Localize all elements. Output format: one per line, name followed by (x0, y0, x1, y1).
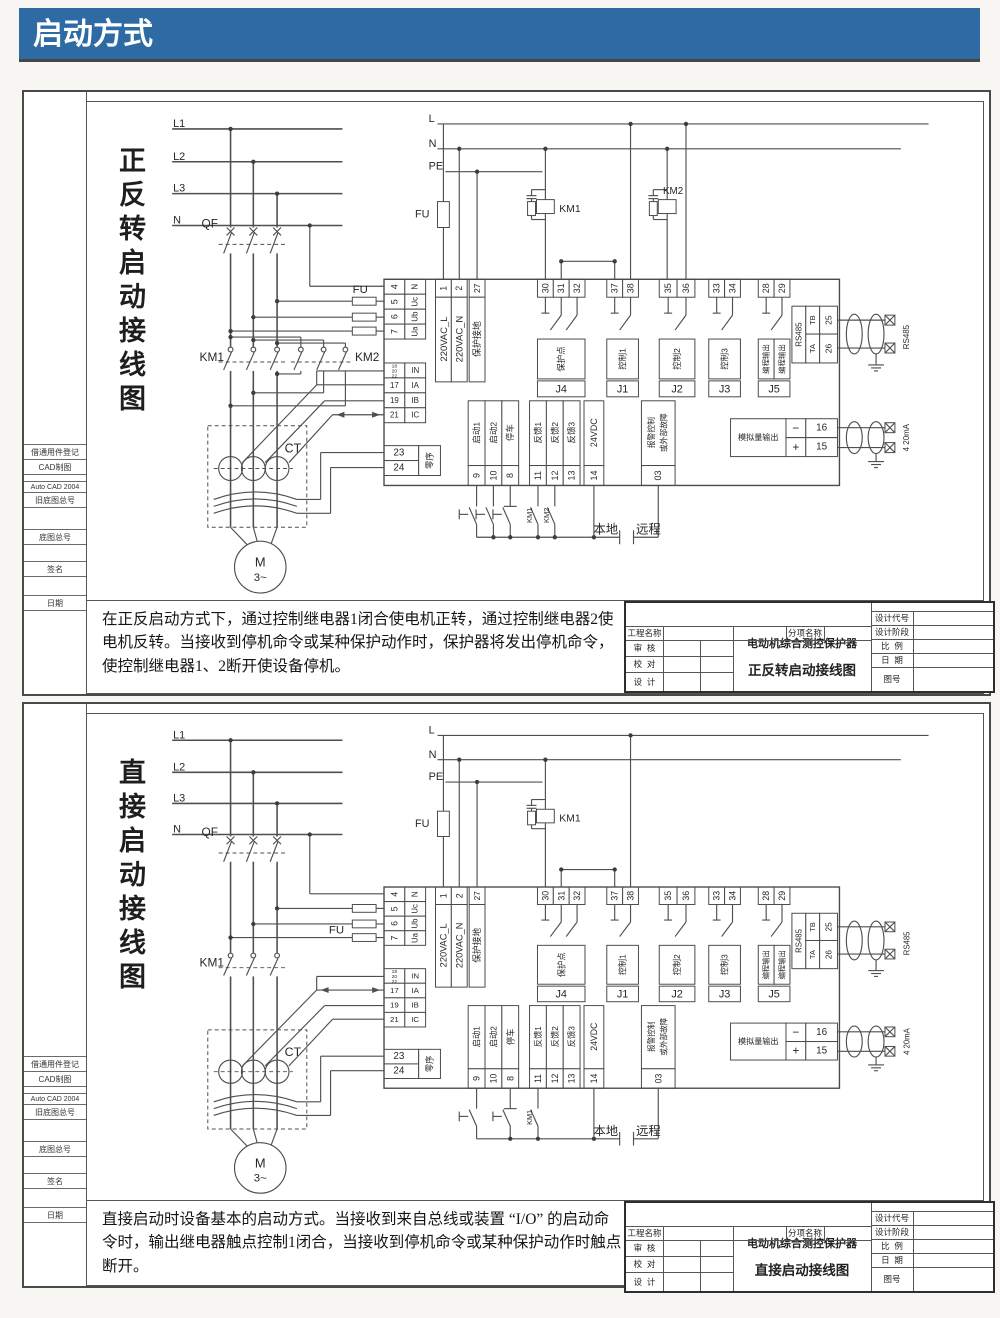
label-t-J4: J4 (555, 988, 566, 1000)
label-t-n17: 17 (390, 381, 399, 390)
label-t-J3: J3 (719, 988, 730, 1000)
label-sh-KM1: KM1 (200, 956, 224, 969)
margin-spacer (24, 507, 86, 529)
label-t-n19: 19 (390, 1001, 399, 1010)
titleblock-divider (663, 1226, 664, 1291)
titleblock-divider (871, 1203, 872, 1291)
label-t-n11: 11 (533, 1074, 543, 1083)
label-t-n36: 36 (681, 283, 691, 293)
label-sh-L1: L1 (173, 729, 185, 741)
tb-review-label: 审 核 (626, 640, 663, 656)
label-t-lUb: Ub (411, 311, 420, 322)
label-t-n1: 1 (438, 286, 448, 291)
drawing-frame: L1L2L3NQFKM1CTM3~LNPEFUKM1本地远程4567NUcUbU… (87, 101, 984, 694)
titleblock-divider (786, 626, 787, 640)
label-t-lIN: IN (411, 366, 419, 375)
margin-label-old-base-no: 旧底图总号 (24, 492, 86, 508)
label-t-n5: 5 (389, 906, 399, 911)
label-t-l11: 反馈1 (533, 1026, 543, 1047)
label-t-n22: 22 (392, 373, 398, 379)
titleblock-divider (913, 1211, 914, 1291)
power-wires (172, 740, 342, 1129)
label-t-J2: J2 (671, 383, 682, 395)
label-sh-L2: L2 (173, 762, 185, 774)
label-t-J1: J1 (617, 383, 628, 395)
titleblock-divider (871, 639, 993, 640)
label-t-n34: 34 (728, 283, 738, 293)
label-t-n32: 32 (572, 891, 582, 901)
label-t-n31: 31 (556, 283, 566, 293)
power-wires (172, 129, 342, 527)
label-sh-N: N (173, 215, 181, 227)
sheet-bottom-row: 直接启动时设备基本的启动方式。当接收到来自总线或装置 “I/O” 的启动命令时，… (87, 1200, 983, 1285)
label-t-n7: 7 (389, 329, 399, 334)
label-sh-local: 本地 (593, 522, 618, 536)
margin-label-parts-reg: 借通用件登记 (24, 1056, 86, 1072)
title-block: 工程名称 分项名称 审 核 校 对 设 计 设计代号 设计阶段 比 例 日 期 … (624, 601, 995, 693)
label-t-n30: 30 (540, 891, 550, 901)
label-t-lN: N (411, 284, 420, 290)
label-t-n7: 7 (389, 936, 399, 941)
label-t-lJ1: 控制1 (618, 348, 628, 370)
label-t-l03b: 或外部故障 (659, 413, 669, 452)
titleblock-divider (871, 611, 993, 612)
label-t-n29: 29 (777, 891, 787, 901)
terminal-cells (352, 809, 895, 1088)
label-t-n16: 16 (816, 1027, 828, 1038)
label-t-J5: J5 (768, 383, 779, 395)
label-t-n1: 1 (438, 893, 448, 898)
label-t-n10: 10 (488, 470, 498, 480)
label-t-n11: 11 (533, 471, 543, 480)
titleblock-divider (824, 1226, 825, 1240)
label-t-n38: 38 (626, 283, 636, 293)
label-t-n16: 16 (816, 423, 827, 434)
titleblock-divider (626, 656, 733, 657)
schematic-svg: L1L2L3NQFKM1CTM3~LNPEFUKM1本地远程4567NUcUbU… (87, 102, 983, 600)
drawing-margin-column: 借通用件登记 CAD制图 Auto CAD 2004 旧底图总号 底图总号 签名… (24, 704, 87, 1286)
sheet-bottom-row: 在正反启动方式下，通过控制继电器1闭合使电机正转，通过控制继电器2使电机反转。当… (87, 600, 983, 693)
titleblock-divider (733, 1226, 734, 1291)
tb-check-label: 校 对 (626, 1256, 663, 1272)
label-sh-local: 本地 (593, 1124, 618, 1138)
label-t-lIB: IB (411, 396, 418, 405)
label-t-lUc: Uc (411, 297, 420, 307)
title-block: 工程名称 分项名称 审 核 校 对 设 计 设计代号 设计阶段 比 例 日 期 … (624, 1201, 995, 1293)
label-t-n31: 31 (556, 891, 566, 901)
label-t-l13: 反馈3 (567, 422, 577, 444)
titleblock-divider (700, 1240, 701, 1291)
label-t-lJ4: 保护点 (556, 952, 566, 977)
tb-date-label: 日 期 (871, 653, 913, 667)
label-t-n33: 33 (712, 283, 722, 293)
sheet-main-area: L1L2L3NQFKM1CTM3~LNPEFUKM1本地远程4567NUcUbU… (87, 704, 989, 1286)
label-t-l13: 反馈3 (567, 1026, 577, 1047)
label-t-l10: 启动2 (488, 1026, 498, 1047)
ct-coil (214, 492, 297, 513)
label-t-l10: 启动2 (488, 422, 498, 444)
tb-code-label: 设计代号 (871, 1211, 913, 1225)
label-t-l12: 反馈2 (550, 1026, 560, 1047)
label-sh-L: L (429, 113, 435, 125)
margin-label-base-no: 底图总号 (24, 1141, 86, 1157)
margin-label-old-base-no: 旧底图总号 (24, 1104, 86, 1120)
label-t-l12: 反馈2 (550, 422, 560, 444)
label-t-n8: 8 (505, 473, 515, 478)
label-t-l14: 24VDC (589, 418, 599, 447)
titleblock-divider (871, 1267, 993, 1268)
label-t-lJ2: 控制2 (672, 348, 682, 370)
titleblock-divider (626, 672, 733, 673)
tb-drawing-name: 正反转启动接线图 (733, 655, 871, 683)
terminal-cells (352, 200, 895, 486)
label-t-J2: J2 (671, 988, 682, 1000)
wiring-diagram-forward-reverse: L1L2L3NQFKM1CTM3~LNPEFUKM1本地远程4567NUcUbU… (87, 102, 983, 600)
label-t-n28: 28 (761, 891, 771, 901)
label-t-n24: 24 (393, 463, 404, 474)
label-t-lJ5: 编程输出 (762, 950, 771, 979)
label-t-n13: 13 (567, 470, 577, 480)
label-sh-N: N (429, 749, 437, 761)
titleblock-divider (626, 1272, 733, 1273)
label-t-n4: 4 (389, 284, 399, 289)
label-t-n5: 5 (389, 299, 399, 304)
titleblock-divider (663, 626, 664, 691)
label-t-lUc: Uc (411, 904, 420, 914)
label-t-n03: 03 (653, 470, 663, 480)
tb-scale-label: 比 例 (871, 639, 913, 653)
label-t-lIC: IC (411, 411, 419, 420)
label-t-n26: 26 (824, 950, 834, 960)
label-t-n27: 27 (472, 283, 482, 293)
label-sh-FU: FU (415, 818, 430, 830)
label-t-n37: 37 (610, 283, 620, 293)
label-t-analog: 模拟量输出 (738, 432, 779, 442)
label-sh-KM1: KM1 (200, 350, 225, 364)
tb-review-label: 审 核 (626, 1240, 663, 1256)
label-t-n4: 4 (389, 892, 399, 897)
label-t-n28: 28 (761, 283, 771, 293)
label-sh-KM2: KM2 (355, 350, 380, 364)
diagram-description: 在正反启动方式下，通过控制继电器1闭合使电机正转，通过控制继电器2使电机反转。当… (87, 601, 624, 693)
label-t-lIB: IB (411, 1001, 418, 1010)
label-t-rs485x: RS485 (902, 324, 911, 349)
margin-spacer (24, 544, 86, 561)
label-sh-M3: 3~ (254, 1173, 267, 1185)
label-t-n15: 15 (816, 1045, 828, 1056)
label-t-lJ3: 控制3 (720, 954, 730, 975)
margin-spacer (24, 1156, 86, 1173)
label-t-lIA: IA (411, 381, 419, 390)
label-sh-QF: QF (202, 216, 218, 230)
label-sh-KM2: KM2 (542, 508, 551, 523)
label-sh-N: N (173, 824, 181, 836)
label-t-ma420: 4 20mA (902, 1027, 911, 1055)
label-t-n38: 38 (625, 891, 635, 901)
label-t-lJ5: 编程输出 (761, 344, 771, 374)
label-sh-CT: CT (285, 1045, 302, 1059)
label-t-l9: 启动1 (472, 1026, 482, 1047)
margin-label-date: 日期 (24, 1207, 86, 1223)
label-sh-L3: L3 (173, 183, 185, 195)
label-sh-CT: CT (285, 442, 302, 456)
tb-date-label: 日 期 (871, 1253, 913, 1267)
tb-figno-label: 图号 (871, 1267, 913, 1291)
titleblock-divider (871, 1211, 993, 1212)
label-sh-KM1: KM1 (559, 814, 581, 825)
label-t-n26: 26 (824, 343, 834, 353)
label-t-n9: 9 (472, 1076, 482, 1081)
margin-spacer (24, 92, 86, 444)
label-t-l14: 24VDC (589, 1022, 599, 1051)
label-t-n15: 15 (816, 442, 827, 453)
label-t-n17: 17 (390, 986, 399, 995)
label-sh-PE: PE (429, 771, 444, 783)
margin-spacer (24, 704, 86, 1056)
label-t-n14: 14 (589, 470, 599, 480)
label-t-l11: 反馈1 (533, 422, 543, 444)
label-t-lpe: 保护接地 (471, 928, 482, 963)
margin-spacer (24, 576, 86, 595)
label-sh-FU: FU (415, 209, 430, 221)
label-t-n29: 29 (777, 283, 787, 293)
label-t-n2: 2 (454, 286, 464, 291)
label-sh-KM2: KM2 (663, 186, 684, 197)
label-t-lUb: Ub (411, 918, 420, 929)
tb-figno-label: 图号 (871, 667, 913, 691)
tb-product-name: 电动机综合测控保护器 (733, 1231, 871, 1255)
sheet-forward-reverse-start: 借通用件登记 CAD制图 Auto CAD 2004 旧底图总号 底图总号 签名… (22, 90, 991, 696)
margin-label-base-no: 底图总号 (24, 529, 86, 545)
label-t-l9: 启动1 (472, 422, 482, 444)
label-sh-remote: 远程 (636, 521, 661, 536)
label-t-n22: 22 (392, 979, 398, 985)
label-t-n03: 03 (653, 1074, 663, 1084)
drawing-margin-column: 借通用件登记 CAD制图 Auto CAD 2004 旧底图总号 底图总号 签名… (24, 92, 87, 694)
label-sh-N: N (429, 138, 437, 150)
label-t-lJ5: 编程输出 (777, 950, 786, 979)
label-t-n35: 35 (663, 891, 673, 901)
label-t-n32: 32 (572, 283, 582, 293)
label-sh-PE: PE (429, 161, 444, 173)
label-sh-L: L (429, 725, 435, 737)
label-t-lJ1: 控制1 (618, 954, 628, 975)
tb-stage-label: 设计阶段 (871, 1225, 913, 1239)
label-t-n9: 9 (472, 473, 482, 478)
ct-coil (214, 1095, 297, 1116)
margin-label-parts-reg: 借通用件登记 (24, 444, 86, 460)
margin-spacer (24, 1086, 86, 1093)
titleblock-divider (871, 1239, 993, 1240)
label-t-n21: 21 (390, 1015, 399, 1024)
tb-code-label: 设计代号 (871, 611, 913, 625)
label-t-n19: 19 (390, 396, 399, 405)
margin-label-signature: 签名 (24, 1173, 86, 1189)
label-t-n35: 35 (663, 283, 673, 293)
label-t-l220L: 220VAC_L (438, 923, 448, 967)
label-t-n23: 23 (393, 448, 404, 459)
label-t-lN: N (411, 891, 420, 897)
titleblock-divider (913, 611, 914, 691)
label-t-tb: TB (808, 922, 817, 931)
tb-project-label: 工程名称 (626, 1226, 663, 1240)
label-t-n21: 21 (390, 411, 399, 420)
label-sh-L1: L1 (173, 118, 185, 130)
tb-design-label: 设 计 (626, 672, 663, 691)
titleblock-divider (824, 626, 825, 640)
label-t-rs485: RS485 (794, 322, 803, 347)
label-t-lJ2: 控制2 (672, 954, 682, 975)
label-t-J5: J5 (768, 988, 779, 1000)
tb-design-label: 设 计 (626, 1272, 663, 1291)
schematic-svg: L1L2L3NQFKM1CTM3~LNPEFUKM1本地远程4567NUcUbU… (87, 714, 983, 1200)
label-t-lJ5: 编程输出 (777, 344, 787, 374)
label-sh-M3: 3~ (254, 572, 267, 584)
label-t-n24: 24 (393, 1066, 405, 1077)
label-t-l8: 停车 (505, 424, 515, 441)
titleblock-divider (700, 640, 701, 691)
label-sh-FU: FU (353, 284, 368, 296)
label-t-n10: 10 (488, 1074, 498, 1084)
label-t-n6: 6 (389, 921, 399, 926)
label-t-n12: 12 (550, 1074, 560, 1084)
tb-check-label: 校 对 (626, 656, 663, 672)
label-t-rs485x: RS485 (902, 931, 911, 955)
label-sh-remote: 远程 (636, 1123, 661, 1138)
label-t-n23: 23 (393, 1051, 405, 1062)
label-t-lIC: IC (411, 1015, 419, 1024)
label-sh-KM1: KM1 (559, 204, 581, 215)
titleblock-divider (871, 1225, 993, 1226)
margin-spacer (24, 1119, 86, 1141)
tb-project-label: 工程名称 (626, 626, 663, 640)
page-title: 启动方式 (33, 18, 153, 51)
label-t-n37: 37 (610, 891, 620, 901)
label-t-l220N: 220VAC_N (454, 316, 465, 363)
wiring-diagram-direct: L1L2L3NQFKM1CTM3~LNPEFUKM1本地远程4567NUcUbU… (87, 714, 983, 1200)
label-sh-M: M (255, 555, 266, 570)
label-t-n8: 8 (505, 1076, 515, 1081)
label-t-n14: 14 (589, 1074, 599, 1084)
label-t-lIA: IA (411, 986, 419, 995)
label-t-n30: 30 (540, 283, 550, 293)
label-t-n2: 2 (454, 893, 464, 898)
margin-label-signature: 签名 (24, 561, 86, 577)
label-t-n6: 6 (389, 314, 399, 319)
label-t-lUa: Ua (411, 326, 420, 337)
label-t-l8: 停车 (505, 1028, 515, 1045)
label-t-n27: 27 (472, 891, 482, 901)
label-t-l03a: 报警控制 (646, 1021, 656, 1052)
label-t-n25: 25 (824, 922, 834, 932)
label-t-tb: TB (808, 315, 817, 325)
label-sh-KM1: KM1 (525, 1110, 534, 1125)
label-t-ta: TA (808, 344, 817, 353)
label-t-l03a: 报警控制 (646, 417, 656, 448)
label-t-plus: + (792, 1044, 799, 1057)
label-t-n36: 36 (681, 891, 691, 901)
diagram-description: 直接启动时设备基本的启动方式。当接收到来自总线或装置 “I/O” 的启动命令时，… (87, 1201, 624, 1285)
label-sh-L3: L3 (173, 793, 185, 805)
label-sh-KM1: KM1 (525, 508, 534, 523)
label-t-analog: 模拟量输出 (738, 1036, 779, 1046)
label-t-ma420: 4 20mA (902, 423, 911, 451)
label-t-ta: TA (808, 950, 817, 959)
label-t-n25: 25 (824, 315, 834, 325)
tb-scale-label: 比 例 (871, 1239, 913, 1253)
sheet-main-area: L1L2L3NQFKM1CTM3~LNPEFUKM1本地远程4567NUcUbU… (87, 92, 989, 694)
label-t-minus: − (792, 421, 799, 435)
titleblock-divider (871, 1253, 993, 1254)
label-t-plus: + (792, 440, 799, 454)
titleblock-divider (786, 1226, 787, 1240)
label-t-lJ3: 控制3 (720, 348, 730, 370)
label-sh-QF: QF (202, 826, 218, 839)
titleblock-divider (626, 1256, 733, 1257)
tb-drawing-name: 直接启动接线图 (733, 1255, 871, 1283)
label-t-lzx: 零序 (425, 452, 435, 469)
margin-spacer (24, 1188, 86, 1207)
label-sh-L2: L2 (173, 151, 185, 163)
label-t-J3: J3 (719, 383, 730, 395)
label-t-l220L: 220VAC_L (438, 317, 449, 362)
diagram-side-title: 正反转启动接线图 (111, 146, 150, 418)
tb-product-name: 电动机综合测控保护器 (733, 631, 871, 655)
drawing-frame: L1L2L3NQFKM1CTM3~LNPEFUKM1本地远程4567NUcUbU… (87, 713, 984, 1286)
label-t-l03b: 或外部故障 (659, 1017, 669, 1055)
label-t-n13: 13 (567, 1074, 577, 1084)
label-sh-M: M (255, 1156, 266, 1171)
titleblock-divider (733, 626, 734, 691)
label-t-l220N: 220VAC_N (454, 923, 464, 968)
label-t-n33: 33 (712, 891, 722, 901)
label-t-J1: J1 (617, 988, 628, 1000)
label-t-lzx: 零序 (425, 1056, 435, 1073)
label-t-n12: 12 (550, 470, 560, 480)
sheet-direct-start: 借通用件登记 CAD制图 Auto CAD 2004 旧底图总号 底图总号 签名… (22, 702, 991, 1288)
margin-spacer (24, 474, 86, 481)
label-t-J4: J4 (555, 383, 566, 395)
mechanical-links (208, 853, 307, 1129)
titleblock-divider (871, 625, 993, 626)
titleblock-divider (871, 603, 872, 691)
label-t-n34: 34 (727, 891, 737, 901)
diagram-side-title: 直接启动接线图 (111, 758, 150, 996)
label-t-rs485: RS485 (794, 928, 803, 952)
label-t-minus: − (792, 1026, 799, 1039)
label-t-lUa: Ua (411, 932, 420, 943)
page-banner: 启动方式 (19, 8, 980, 62)
tb-stage-label: 设计阶段 (871, 625, 913, 639)
titleblock-divider (871, 667, 993, 668)
label-sh-FU: FU (329, 925, 344, 937)
titleblock-divider (871, 653, 993, 654)
label-t-lJ4: 保护点 (556, 346, 566, 372)
margin-label-cad: CAD制图 (24, 1071, 86, 1087)
label-t-lIN: IN (411, 971, 419, 980)
margin-label-cad: CAD制图 (24, 459, 86, 475)
margin-label-date: 日期 (24, 595, 86, 611)
label-t-lpe: 保护接地 (471, 321, 482, 357)
